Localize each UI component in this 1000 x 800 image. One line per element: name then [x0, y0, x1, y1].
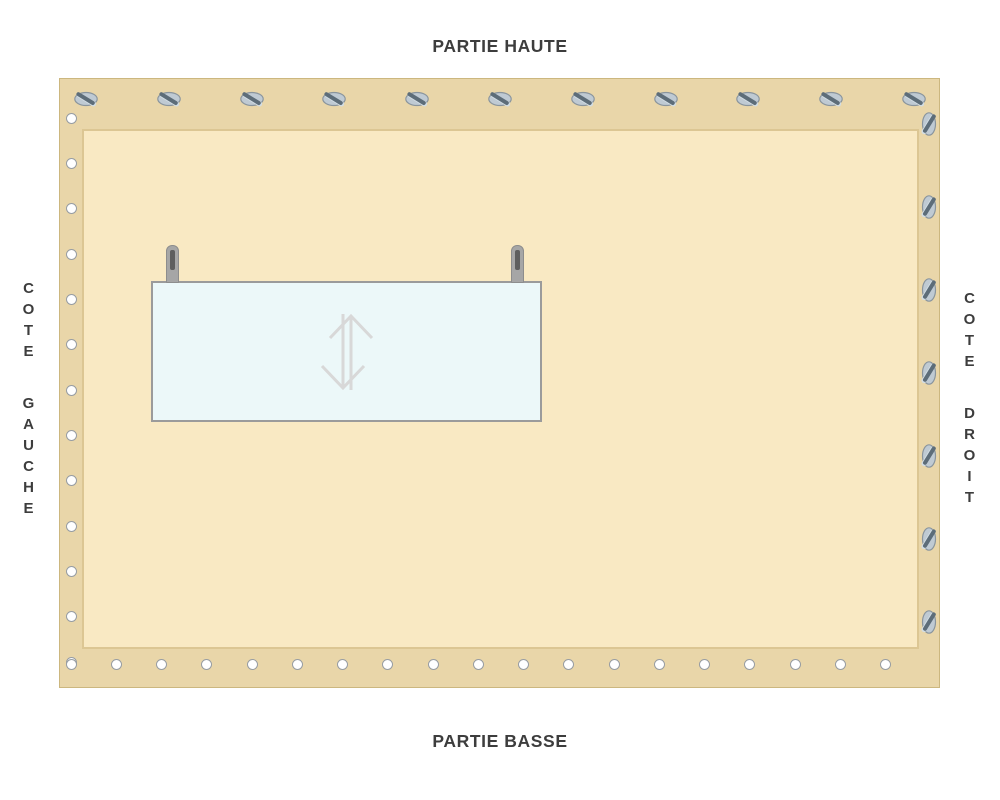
eyelet-icon: [428, 659, 439, 670]
right-label-wrap: COTE DROIT: [961, 0, 978, 800]
eyelet-icon: [111, 659, 122, 670]
label-partie-basse: PARTIE BASSE: [0, 731, 1000, 752]
eyelet-icon: [156, 659, 167, 670]
eyelet-icon: [563, 659, 574, 670]
screw-icon: [73, 91, 99, 107]
left-label-wrap: COTE GAUCHE: [20, 0, 37, 800]
eyelet-icon: [66, 521, 77, 532]
eyelet-icon: [66, 203, 77, 214]
eyelet-icon: [66, 294, 77, 305]
eyelet-icon: [292, 659, 303, 670]
screw-icon: [321, 91, 347, 107]
eyelet-icon: [66, 475, 77, 486]
eyelet-icon: [835, 659, 846, 670]
screw-icon: [901, 91, 927, 107]
eyelet-icon: [66, 659, 77, 670]
resize-vertical-icon: [292, 302, 402, 402]
eyelet-icon: [247, 659, 258, 670]
pin-core: [515, 250, 520, 270]
eyelet-icon: [66, 158, 77, 169]
screw-icon: [921, 443, 937, 469]
screw-icon: [921, 526, 937, 552]
screw-icon: [653, 91, 679, 107]
label-cote-gauche: COTE GAUCHE: [20, 280, 37, 521]
screw-icon: [921, 111, 937, 137]
eyelet-icon: [201, 659, 212, 670]
eyelet-icon: [790, 659, 801, 670]
eyelet-icon: [337, 659, 348, 670]
screw-icon: [570, 91, 596, 107]
pin-icon: [511, 245, 524, 283]
label-partie-haute: PARTIE HAUTE: [0, 36, 1000, 57]
screw-icon: [156, 91, 182, 107]
screw-icon: [487, 91, 513, 107]
tarp-canvas: [59, 78, 940, 688]
screw-icon: [921, 194, 937, 220]
eyelet-icon: [66, 611, 77, 622]
eyelet-icon: [654, 659, 665, 670]
eyelet-icon: [66, 566, 77, 577]
eyelet-icon: [66, 339, 77, 350]
screw-icon: [239, 91, 265, 107]
window[interactable]: [151, 281, 542, 422]
eyelet-icon: [699, 659, 710, 670]
screw-icon: [404, 91, 430, 107]
screw-icon: [735, 91, 761, 107]
eyelet-icon: [880, 659, 891, 670]
eyelet-icon: [382, 659, 393, 670]
eyelet-icon: [66, 249, 77, 260]
pin-icon: [166, 245, 179, 283]
screw-icon: [818, 91, 844, 107]
pin-core: [170, 250, 175, 270]
eyelet-icon: [66, 113, 77, 124]
screw-icon: [921, 609, 937, 635]
eyelet-icon: [744, 659, 755, 670]
eyelet-icon: [518, 659, 529, 670]
label-cote-droit: COTE DROIT: [961, 290, 978, 510]
eyelet-icon: [66, 430, 77, 441]
eyelet-icon: [473, 659, 484, 670]
eyelet-icon: [609, 659, 620, 670]
eyelet-icon: [66, 385, 77, 396]
screw-icon: [921, 277, 937, 303]
screw-icon: [921, 360, 937, 386]
